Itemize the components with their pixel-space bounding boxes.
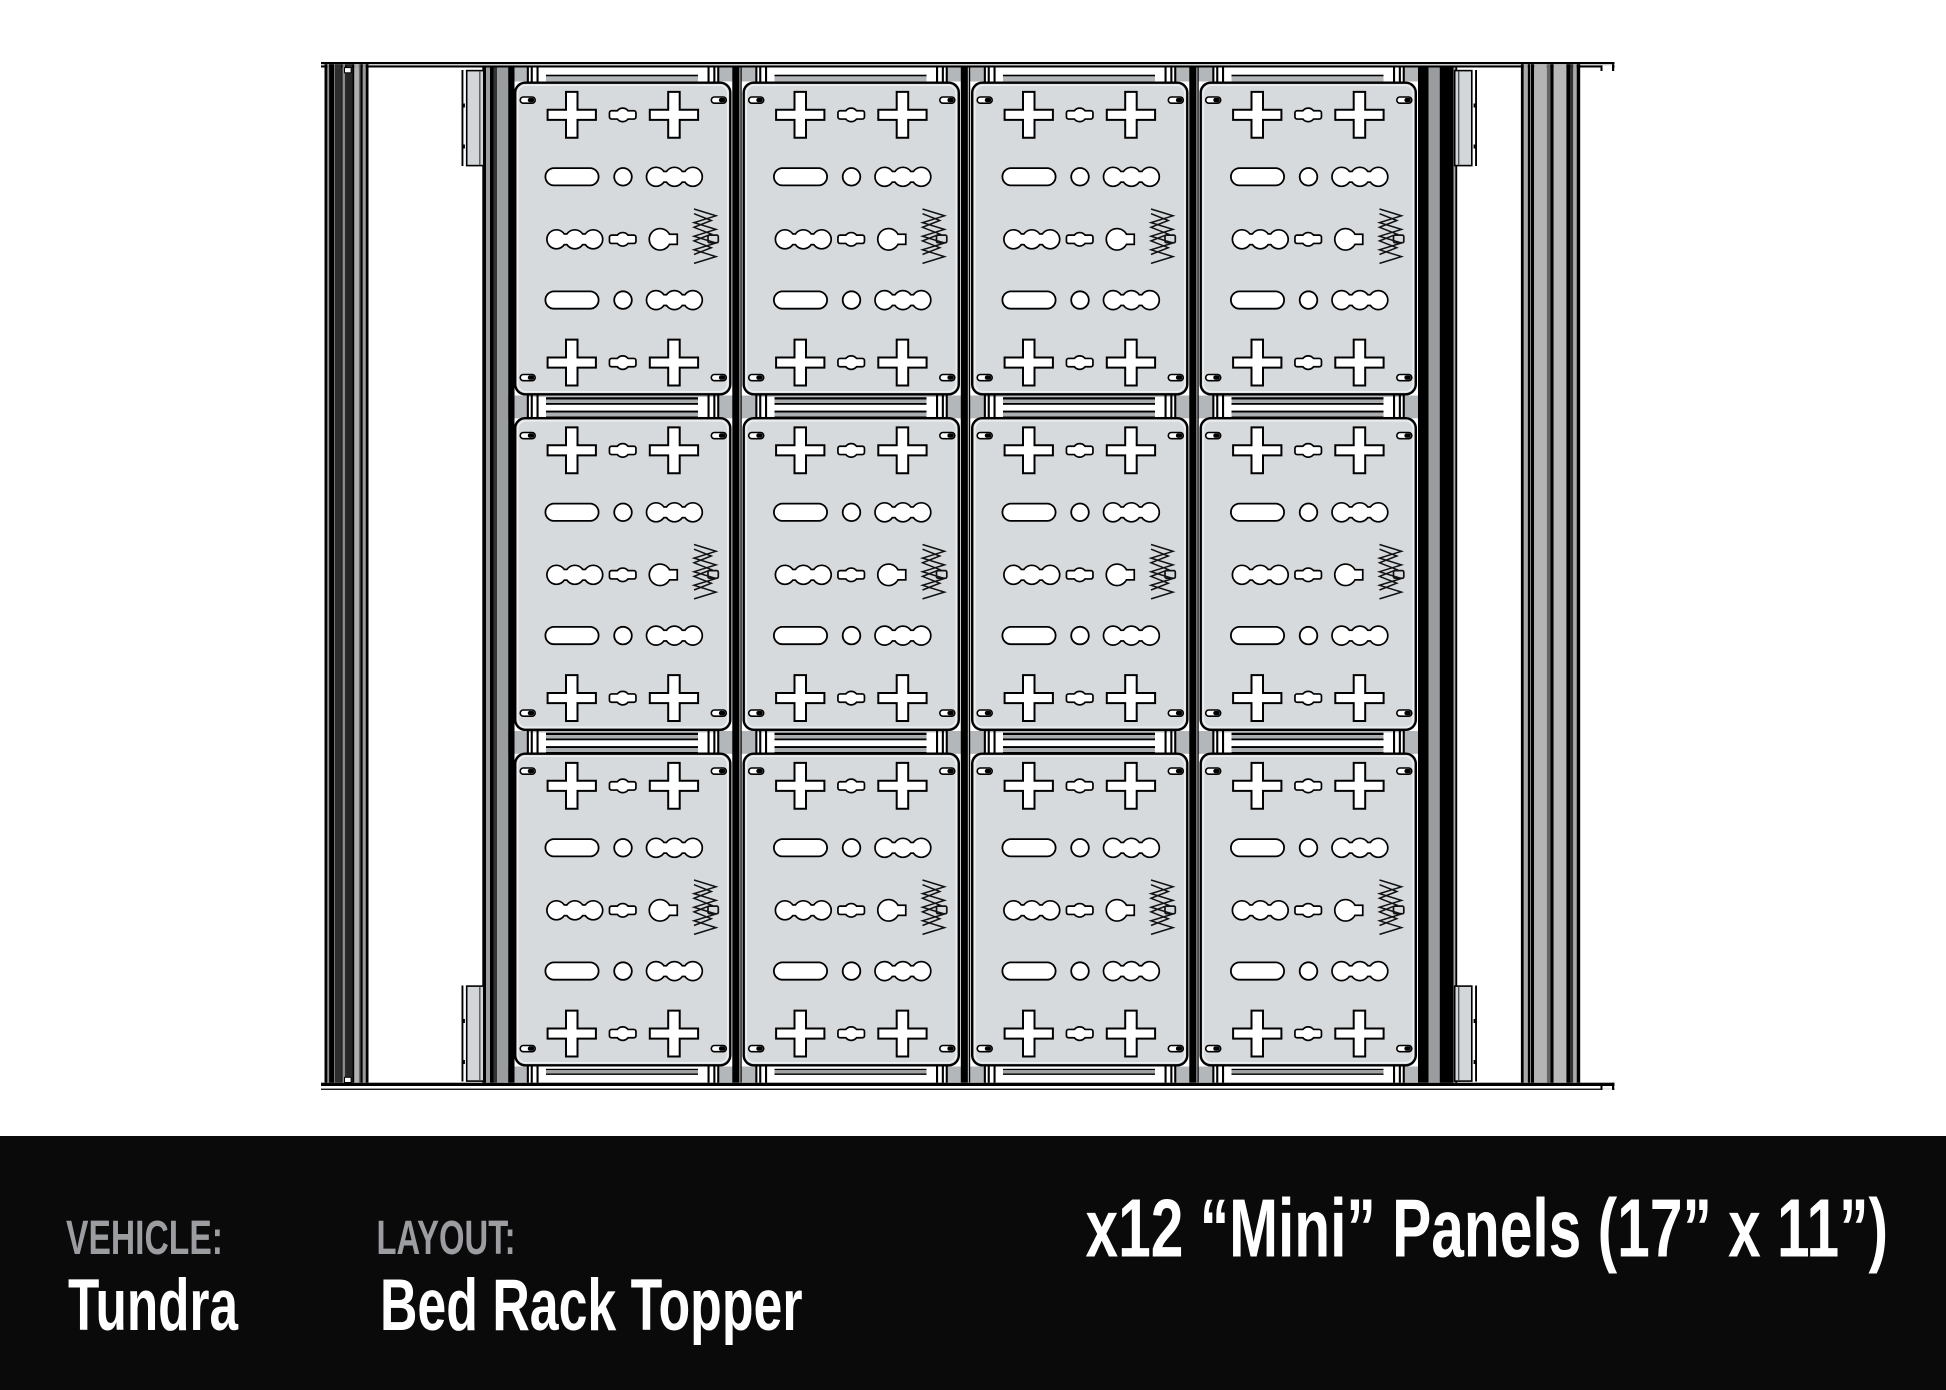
svg-text:Bed Rack Topper: Bed Rack Topper [380, 1264, 803, 1346]
svg-text:Tundra: Tundra [68, 1264, 239, 1346]
svg-text:VEHICLE:: VEHICLE: [66, 1212, 223, 1265]
svg-text:LAYOUT:: LAYOUT: [377, 1212, 516, 1265]
svg-text:x12 “Mini” Panels (17” x 11”): x12 “Mini” Panels (17” x 11”) [1086, 1182, 1889, 1275]
